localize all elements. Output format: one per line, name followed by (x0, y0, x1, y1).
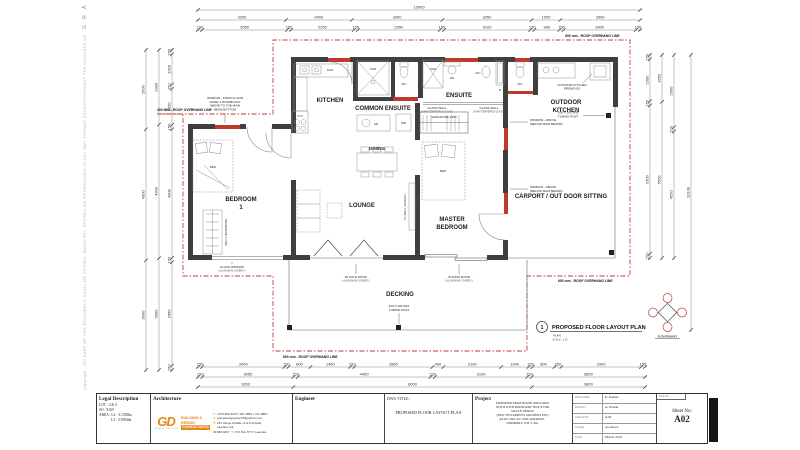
dwg-title-cell: DWG TITLE: PROPOSED FLOOR LAYOUT PLAN (385, 394, 473, 443)
annotation-glass-wall-2-sub: (6 MM TEMPERED GLASS) (473, 111, 505, 114)
dim-label: 250 (555, 362, 562, 367)
field-value: As shown (603, 424, 656, 433)
field-label: DRAWN (573, 404, 603, 413)
file-no-label: FILE NO (657, 394, 686, 400)
gd-logo: GD GRACE DESIGN (151, 416, 181, 430)
field-value: K. Kumar (603, 394, 656, 403)
room-label-ensuite: ENSUITE (446, 93, 472, 99)
dim-label: 3100 (477, 372, 487, 377)
plan-title-sub1: PLAN (553, 334, 561, 338)
fixture-wm: WM (401, 121, 407, 125)
fixture-wardrobe: WARDROBE 2350 (431, 115, 456, 119)
annotation-window-note-4: BEAM BOTTOM (214, 107, 237, 111)
dim-label: 3800 (584, 382, 594, 387)
annotation-sliding: SLIDING DOOR (448, 275, 471, 279)
dim-label: 4450 (360, 372, 370, 377)
room-label-master-1: MASTER (439, 217, 465, 223)
walls (188, 57, 618, 260)
side-brand-text: G R A C E D E S I G N (82, 0, 88, 29)
fields-cell: DESIGNED K. Kumar DRAWN A. Prasad CHECKE… (573, 394, 657, 443)
dim-label: 150 (645, 99, 650, 106)
dim-row-bottom-total: 320080003800 (196, 382, 647, 389)
legal-area2: L3 - 3.5994ha (97, 418, 150, 423)
room-label-bedroom1: BEDROOM (225, 197, 256, 203)
contact-email: gracedesigngroup78@yahoo.com (217, 416, 262, 420)
architecture-title: Architecture (151, 394, 292, 403)
title-block: Legal Description LOT : 2 & 3 SO : 9169 … (96, 393, 708, 444)
dim-label: 1650 (657, 73, 662, 83)
contact-address2: Lautoka, Fiji (217, 425, 233, 429)
gd-logo-sub: GRACE DESIGN (151, 428, 181, 430)
dim-label: 800 (296, 362, 303, 367)
dim-row-top-mid: 320024003300325010502900 (196, 15, 642, 22)
bifold-door-leaves (314, 240, 378, 256)
elevation-key-label: ELEVATION KEY (658, 336, 678, 339)
fixture-hb-2: HB (374, 122, 378, 126)
room-label-carport: CARPORT / OUT DOOR SITTING (515, 194, 608, 200)
project-cell: Project PROPOSED FARM HOUSE AND FARM SET… (473, 394, 573, 443)
dim-label: 3200 (237, 15, 247, 20)
engineer-title: Engineer (293, 394, 384, 403)
dim-label: 150 (645, 252, 650, 259)
annotation-window-above-2-sub: (BELOW MAIN BEAMS) (530, 189, 563, 193)
annotation-window-above-1-sub: (BELOW MAIN BEAMS) (530, 122, 563, 126)
dim-label: 150 (645, 53, 650, 60)
dim-label: 5500 (657, 175, 662, 185)
field-label: DATE (573, 434, 603, 443)
dim-label: 2900 (597, 362, 607, 367)
contact-pobox: P.O Box 5777, Lautoka (235, 430, 266, 434)
dim-row-bottom-mid: 1503050150445015031001503800 (196, 372, 647, 379)
room-label-master-2: BEDROOM (436, 225, 467, 231)
dim-label: 150 (167, 364, 172, 371)
dim-label: 150 (292, 372, 299, 377)
dim-label: 2850 (389, 362, 399, 367)
dim-label: 3600 (141, 310, 146, 320)
bdc-line3: CONSULTANTS (181, 425, 210, 430)
annotation-glass-wall-2: GLASS WALL (480, 106, 499, 110)
plan-title-sub2: SCALE : 1:50 (552, 339, 568, 342)
dim-label: 150 (429, 372, 436, 377)
annotation-glass-window-sub: (ALUMINIUM JOINERY) (218, 270, 245, 273)
title-block-end-bar (709, 398, 718, 442)
dim-label: 3450 (167, 309, 172, 319)
dim-label: 150 (167, 123, 172, 130)
field-row-date: DATE March, 2023 (573, 434, 656, 443)
fixture-ds: D&S (327, 68, 333, 72)
dim-label: 2400 (314, 15, 324, 20)
dim-label: 3200 (241, 382, 251, 387)
dim-label: 4300 (141, 190, 146, 200)
fixture-wc-3: WC (518, 82, 524, 86)
dim-label: 150 (167, 83, 172, 90)
field-label: CHECKED (573, 414, 603, 423)
architecture-contacts: ✆+679 999-9437 | 921-0887 | 721-0887 ✉gr… (211, 412, 292, 435)
legal-description-cell: Legal Description LOT : 2 & 3 SO : 9169 … (97, 394, 151, 443)
fixture-wc-2: WC (476, 71, 482, 75)
dim-label: 4300 (167, 188, 172, 198)
room-label-kitchen: KITCHEN (317, 98, 344, 104)
dim-label: 150 (197, 372, 204, 377)
annotation-roof-left: 400 MIN - ROOF OVERHANG LINE (157, 108, 213, 112)
dim-label: 900 (544, 25, 551, 30)
annotation-glass-wall-1-sub: (6 MM TEMPERED GLASS) (421, 111, 453, 114)
field-row-designed: DESIGNED K. Kumar (573, 394, 656, 404)
dim-label: 4550 (669, 190, 674, 200)
annotation-firewood-2: FIREWOOD (564, 87, 581, 91)
contact-address1: 181 Vitogo Parade, A.N.Z Arcade, (217, 421, 262, 425)
contact-phone: +679 999-9437 | 921-0887 | 721-0887 (217, 412, 268, 416)
room-label-common-ensuite: COMMON ENSUITE (355, 106, 411, 112)
dim-col-right-1: 15015001505300150 (645, 53, 652, 260)
dwg-title-text: PROPOSED FLOOR LAYOUT PLAN (385, 410, 472, 415)
annotation-tubing-bottom-2: TUBING POST (389, 308, 410, 312)
floor-plan-drawing: 15000 320024003300325010502900 150305015… (0, 0, 800, 392)
dim-label: 400 (435, 362, 442, 367)
field-label: DESIGNED (573, 394, 603, 403)
dim-label: 3600 (154, 309, 159, 319)
dim-label: 15000 (413, 5, 425, 10)
room-label-outdoor-kitchen-1: OUTDOOR (551, 100, 582, 106)
dim-label: 2900 (596, 15, 606, 20)
annotation-glass-window: GLASS WINDOW (220, 265, 244, 269)
dim-label: 3050 (243, 372, 253, 377)
field-row-checked: CHECKED A.M (573, 414, 656, 424)
field-label: SCALE (573, 424, 603, 433)
plan-title: 1 PROPOSED FLOOR LAYOUT PLAN PLAN SCALE … (537, 322, 646, 342)
dim-label: 1000 (167, 64, 172, 74)
window-marks (215, 58, 533, 214)
dim-label: 5300 (645, 174, 650, 184)
door-arcs (247, 62, 505, 240)
room-label-dining: DINING (369, 146, 386, 151)
architecture-cell: Architecture GD GRACE DESIGN BUILDING & … (151, 394, 293, 443)
dim-label: 3300 (393, 15, 403, 20)
dim-col-left-mid: 240043003600 (154, 48, 161, 372)
annotation-roof-right: 600 mm - ROOF OVERHANG LINE (558, 279, 613, 283)
annotation-roof-bottom: 600 mm - ROOF OVERHANG LINE (283, 355, 338, 359)
dim-label: 8000 (408, 382, 418, 387)
dim-label: 10100 (686, 186, 691, 198)
fixture-bed1-wardrobe: BED 1 WARDROBE (224, 218, 228, 245)
dim-row-top-inner: 1503050150225015029501503100150900150260… (196, 25, 642, 32)
sheet-side-copyright: copyright : NO PART OF THE DOCUMENT SHAL… (82, 12, 88, 390)
dim-label: 2950 (394, 25, 404, 30)
dim-label: 800 (540, 362, 547, 367)
fixture-hb-1: HB (450, 76, 454, 80)
fixture-wc-1: WC (402, 82, 408, 86)
annotation-bifold-sub: (ALUMINIUM JOINERY) (342, 280, 369, 283)
dim-label: 2100 (468, 362, 478, 367)
contact-phone2: 666-9457 (217, 430, 230, 434)
dim-col-left-inner: 1501000150120015043001503450150 (167, 48, 174, 372)
dim-label: 3050 (240, 25, 250, 30)
sheet-number-cell: FILE NO Sheet No: A02 (657, 394, 707, 443)
legal-title: Legal Description (97, 394, 150, 403)
field-value: March, 2023 (603, 434, 656, 443)
dim-col-left-outer: 260043003600 (141, 48, 148, 372)
dim-label: 2600 (141, 84, 146, 94)
annotation-bifold: BI FOLD DOOR (345, 275, 367, 279)
room-label-lounge: LOUNGE (349, 203, 375, 209)
dim-label: 3100 (483, 25, 493, 30)
fixture-b: B (499, 88, 501, 92)
dim-label: 3000 (239, 362, 249, 367)
side-copyright-text: copyright : NO PART OF THE DOCUMENT SHAL… (82, 34, 87, 390)
sheet-number: A02 (657, 414, 707, 424)
dim-col-right-3: 26001504550 (669, 53, 676, 260)
dim-label: 150 (526, 372, 533, 377)
annotation-sliding-sub: (ALUMINIUM JOINERY) (445, 280, 472, 283)
plan-title-label: PROPOSED FLOOR LAYOUT PLAN (552, 325, 646, 331)
annotation-glass-wall-1: GLASS WALL (428, 106, 447, 110)
dim-label: 1050 (542, 15, 552, 20)
fixture-bed-1: BED (210, 165, 217, 169)
dim-label: 3800 (584, 372, 594, 377)
fixture-bed-master: BED (440, 169, 447, 173)
field-row-drawn: DRAWN A. Prasad (573, 404, 656, 414)
dim-label: 2250 (318, 25, 328, 30)
dim-label: 150 (167, 48, 172, 55)
fixture-tv-joinery: TV WALL JOINERY (403, 194, 407, 220)
dim-label: 1000 (510, 362, 520, 367)
dim-row-bottom-inner: 1503000150800145015028504002100100015080… (196, 362, 647, 369)
field-value: A.M (603, 414, 656, 423)
plan-title-number: 1 (541, 325, 544, 331)
field-row-scale: SCALE As shown (573, 424, 656, 434)
dwg-label: DWG TITLE: (385, 394, 472, 402)
dim-label: 2600 (669, 86, 674, 96)
dim-label: 2400 (154, 82, 159, 92)
gd-logo-mark: GD (151, 416, 181, 428)
dim-col-right-total: 10100 (686, 53, 693, 332)
field-value: A. Prasad (603, 404, 656, 413)
annotation-tubing-right-2: TUBING POST (558, 114, 579, 118)
room-label-bedroom1-num: 1 (239, 205, 243, 211)
dim-label: 1500 (645, 75, 650, 85)
dim-label: 150 (669, 125, 674, 132)
dim-label: 2600 (595, 25, 605, 30)
dim-col-right-2: 16505500 (657, 53, 664, 260)
bdc-text: BUILDING & DESIGN CONSULTANTS (181, 416, 211, 430)
room-label-decking: DECKING (386, 292, 414, 298)
elevation-key: ELEVATION KEY (649, 294, 687, 339)
dim-row-top-total: 15000 (196, 5, 642, 12)
dim-label: 150 (167, 256, 172, 263)
dim-label: 1450 (326, 362, 336, 367)
fixture-shr-1: SHR (370, 67, 377, 71)
fixture-stv: STV (297, 114, 303, 118)
dim-label: 3250 (482, 15, 492, 20)
project-line: FORMERLY LOT 2, BA. (473, 422, 572, 426)
annotation-roof-top: 600 mm - ROOF OVERHANG LINE (565, 34, 620, 38)
fixture-shr-2: SHR (430, 67, 437, 71)
engineer-cell: Engineer (293, 394, 385, 443)
furniture (193, 60, 610, 254)
dim-label: 4300 (154, 186, 159, 196)
